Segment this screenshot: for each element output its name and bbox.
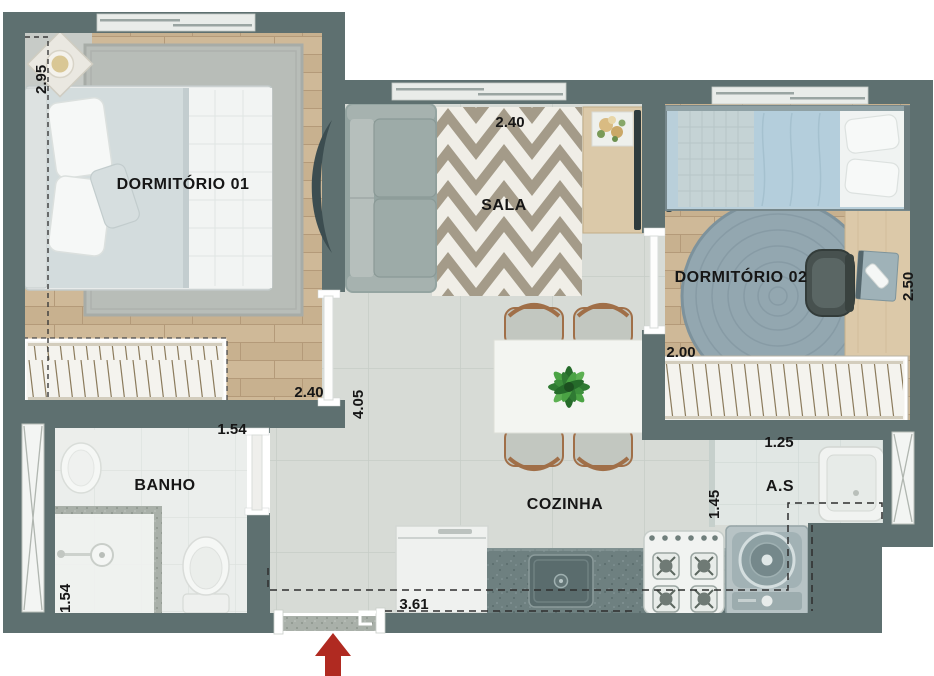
floor-corridor — [270, 428, 345, 613]
dim-2-40-sala: 2.40 — [495, 114, 524, 131]
wall-dorm1-sala — [322, 12, 345, 292]
table-plant-icon — [548, 366, 590, 408]
window-as-right — [892, 432, 914, 524]
dim-1-45: 1.45 — [706, 490, 723, 519]
wall-as-corner-block — [808, 547, 882, 633]
lamp-shade — [52, 56, 69, 73]
room-label-banho: BANHO — [134, 477, 195, 494]
dim-2-95: 2.95 — [33, 65, 50, 94]
wall-right — [910, 80, 933, 440]
floor-plan-canvas: DORMITÓRIO 01 SALA DORMITÓRIO 02 BANHO C… — [0, 0, 934, 676]
laundry-tank — [819, 447, 884, 521]
door-banho — [245, 428, 269, 515]
dim-2-00: 2.00 — [666, 344, 695, 361]
dim-2-50: 2.50 — [900, 272, 917, 301]
wardrobe-dorm2 — [660, 356, 908, 424]
wall-bottom-left — [3, 613, 280, 633]
window-banho-left — [22, 424, 44, 612]
dim-1-25: 1.25 — [764, 434, 793, 451]
fridge-handle — [438, 529, 472, 534]
room-label-as: A.S — [766, 478, 794, 495]
dining-chair — [574, 428, 632, 469]
pillow — [47, 96, 113, 179]
tv-panel-icon — [634, 110, 641, 230]
pillow — [844, 114, 900, 154]
room-label-cozinha: COZINHA — [527, 496, 603, 513]
dim-3-61: 3.61 — [399, 596, 428, 613]
room-label-dormitorio-01: DORMITÓRIO 01 — [117, 174, 250, 193]
room-label-sala: SALA — [481, 197, 527, 214]
window-dorm1-top — [97, 14, 255, 31]
washing-machine — [726, 526, 808, 616]
bathroom-sink — [60, 430, 101, 493]
wall-sala-dorm2-upper — [642, 95, 665, 233]
notebook-icon — [855, 251, 898, 302]
wall-as-bottom — [808, 523, 933, 547]
wardrobe-dorm1 — [23, 338, 227, 405]
room-label-dormitorio-02: DORMITÓRIO 02 — [675, 267, 808, 286]
toilet — [183, 537, 229, 613]
dining-chair — [505, 428, 563, 469]
wall-dorm1-bottom — [3, 400, 345, 428]
window-sala-top — [392, 83, 566, 100]
floor-plan: DORMITÓRIO 01 SALA DORMITÓRIO 02 BANHO C… — [0, 0, 934, 676]
entry-arrow-icon — [315, 633, 351, 676]
dim-1-54-door: 1.54 — [217, 421, 247, 438]
sofa — [345, 103, 437, 293]
desk-chair — [806, 250, 854, 316]
stove — [644, 531, 724, 614]
dim-4-05: 4.05 — [350, 390, 367, 419]
window-dorm2-top — [712, 87, 868, 104]
pillow — [844, 158, 899, 197]
dim-1-54-banho: 1.54 — [57, 583, 74, 613]
single-bed — [666, 106, 912, 210]
dim-2-40-dorm1: 2.40 — [294, 384, 323, 401]
wall-bottom-right — [385, 613, 833, 633]
kitchen-sink — [529, 555, 593, 607]
fridge-seam — [398, 537, 486, 539]
